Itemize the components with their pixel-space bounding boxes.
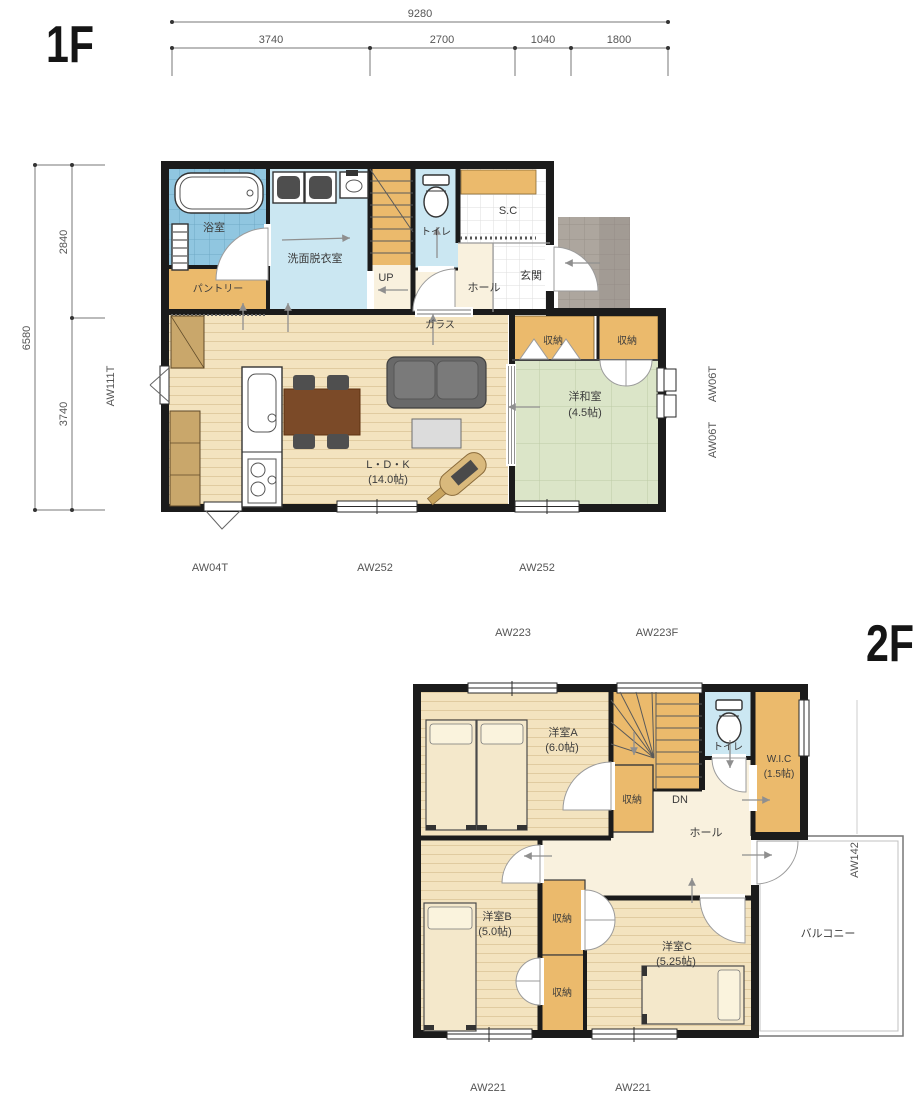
room-label-entrance: 玄関	[520, 268, 542, 282]
room-label-washitsu-size: (4.5帖)	[568, 406, 602, 419]
room-label-hall-1f: ホール	[468, 281, 501, 294]
room-label-washitsu: 洋和室	[569, 389, 602, 403]
window-label-aw223f: AW223F	[636, 627, 679, 639]
room-label-c-size: (5.25帖)	[656, 955, 696, 968]
storage-label-b1: 収納	[552, 912, 572, 925]
floor1-title: 1F	[46, 16, 94, 74]
room-label-bath: 浴室	[203, 220, 225, 234]
dim-width-4: 1800	[607, 34, 631, 46]
porch-step	[600, 217, 630, 310]
room-label-wic-size: (1.5帖)	[764, 767, 795, 780]
bathtub-icon	[175, 173, 263, 213]
window-label-aw142: AW142	[849, 842, 861, 878]
room-label-toilet-2f: トイレ	[713, 742, 743, 753]
washer-icon	[273, 172, 336, 203]
kitchen-counter-icon	[242, 367, 282, 507]
room-label-b: 洋室B	[482, 909, 511, 923]
stairs-up-label: UP	[378, 272, 393, 284]
bed-icon-c	[642, 966, 744, 1024]
bed-icon-b	[424, 903, 476, 1031]
dim-total-height: 6580	[21, 326, 33, 350]
window-label-aw06t-lower: AW06T	[707, 422, 719, 459]
dim-width-2: 2700	[430, 34, 454, 46]
room-label-washroom: 洗面脱衣室	[288, 251, 343, 265]
room-label-shoe-closet: S.C	[499, 205, 517, 217]
toilet-icon-2f	[716, 700, 742, 743]
window-label-aw221-left: AW221	[470, 1082, 506, 1094]
window-box-upper	[664, 369, 676, 391]
window-label-aw221-right: AW221	[615, 1082, 651, 1094]
storage-label-stairs-2f: 収納	[622, 793, 642, 806]
stairs-down-label: DN	[672, 794, 688, 806]
bed-icon-a2	[477, 720, 527, 830]
window-label-aw252-washitsu: AW252	[519, 562, 555, 574]
storage-label-1f-right: 収納	[617, 334, 637, 347]
room-label-b-size: (5.0帖)	[478, 925, 512, 938]
shower-rack-icon	[172, 224, 188, 270]
window-label-aw06t-upper: AW06T	[707, 366, 719, 403]
window-box-lower	[664, 395, 676, 417]
floor2-title: 2F	[866, 615, 914, 673]
vanity-icon	[340, 170, 368, 198]
room-label-wic: W.I.C	[767, 754, 791, 765]
storage-label-1f-left: 収納	[543, 334, 563, 347]
dim-width-3: 1040	[531, 34, 555, 46]
room-label-toilet-1f: トイレ	[421, 227, 451, 238]
coffee-table-icon	[412, 419, 461, 448]
room-label-balcony: バルコニー	[801, 927, 856, 940]
room-label-c: 洋室C	[662, 939, 692, 953]
storage-label-b2: 収納	[552, 986, 572, 999]
window-aw04t	[204, 502, 242, 511]
window-label-aw252-ldk: AW252	[357, 562, 393, 574]
room-label-ldk: L・D・K	[366, 459, 410, 471]
floorplan-page: 1F 9280 3740 2700 1040 1800 6580 2840 37…	[0, 0, 919, 1110]
room-label-ldk-size: (14.0帖)	[368, 473, 408, 486]
floorplan-drawing: 1F 9280 3740 2700 1040 1800 6580 2840 37…	[0, 0, 919, 1110]
dim-height-2: 3740	[58, 402, 70, 426]
bed-icon-a1	[426, 720, 476, 830]
stairs-1f	[370, 169, 413, 269]
window-label-aw223: AW223	[495, 627, 531, 639]
shoe-cabinet	[461, 170, 536, 194]
room-label-a: 洋室A	[548, 725, 578, 739]
sofa-icon	[387, 357, 486, 408]
room-label-hall-2f: ホール	[690, 826, 723, 839]
dim-width-1: 3740	[259, 34, 283, 46]
dim-total-width: 9280	[408, 8, 432, 20]
dim-height-1: 2840	[58, 230, 70, 254]
cabinet-icons	[170, 316, 204, 506]
glass-note-label: ガラス	[425, 319, 455, 331]
room-label-a-size: (6.0帖)	[545, 741, 579, 754]
window-label-aw111t: AW111T	[105, 365, 117, 406]
toilet-icon-1f	[423, 175, 449, 217]
window-label-aw04t: AW04T	[192, 562, 229, 574]
room-label-pantry: パントリー	[193, 283, 244, 295]
